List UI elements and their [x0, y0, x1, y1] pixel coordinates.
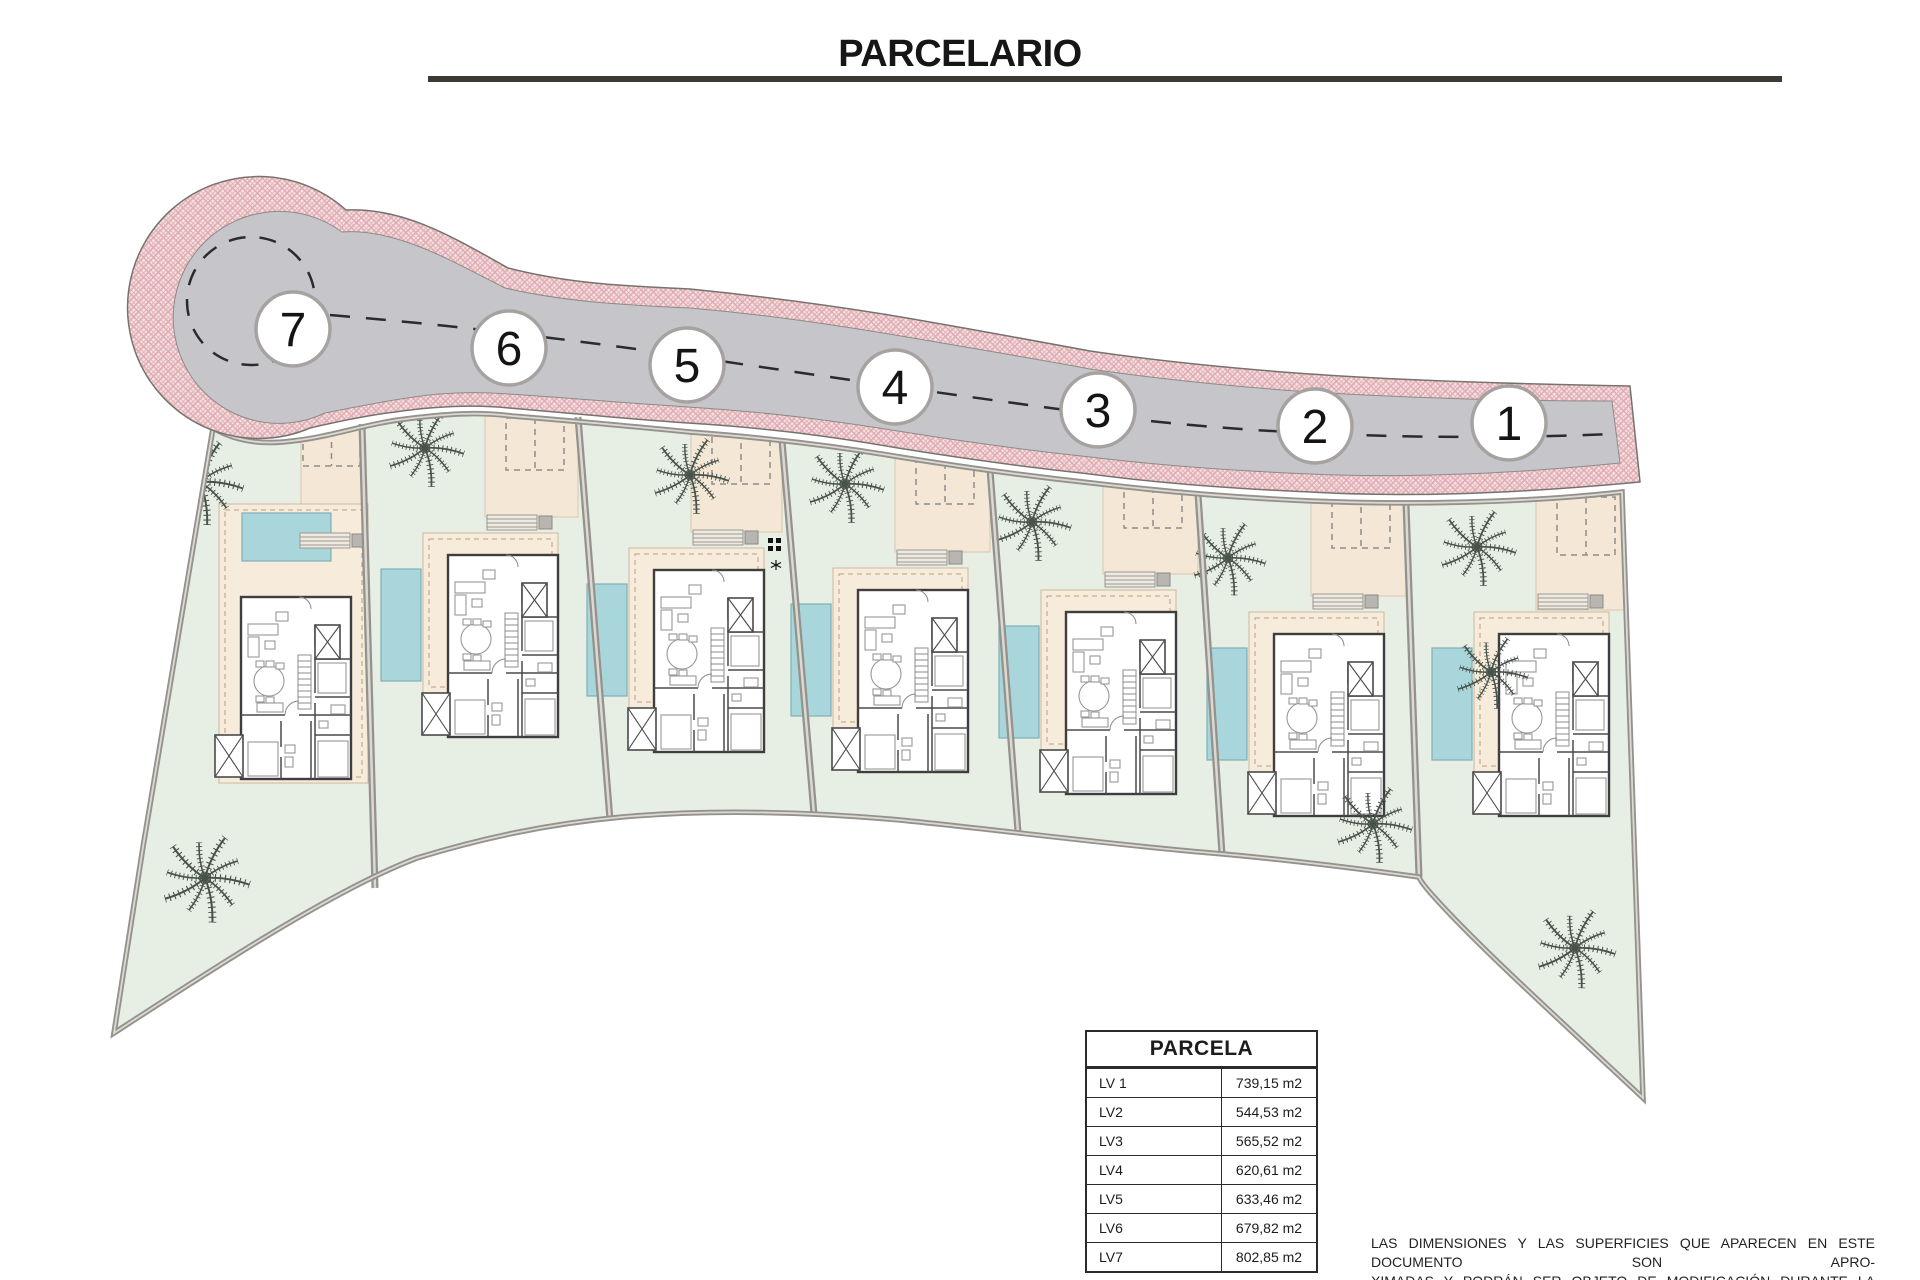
lot-marker-label: 3 — [1085, 385, 1112, 438]
table-row: LV4 620,61 m2 — [1087, 1155, 1316, 1184]
parcel-area: 544,53 m2 — [1221, 1098, 1316, 1126]
lot-marker-3: 3 — [1061, 373, 1135, 447]
parcel-area: 633,46 m2 — [1221, 1185, 1316, 1213]
lot-marker-label: 6 — [496, 323, 523, 376]
lot-marker-label: 5 — [674, 340, 701, 393]
parcel-id: LV6 — [1087, 1214, 1221, 1242]
parcel-area: 802,85 m2 — [1221, 1243, 1316, 1271]
table-row: LV 1 739,15 m2 — [1087, 1068, 1316, 1097]
disclaimer-note: LAS DIMENSIONES Y LAS SUPERFICIES QUE AP… — [1371, 1234, 1875, 1280]
disclaimer-line: XIMADAS Y PODRÁN SER OBJETO DE MODIFICAC… — [1371, 1272, 1875, 1280]
parcel-id: LV3 — [1087, 1127, 1221, 1155]
parcel-id: LV5 — [1087, 1185, 1221, 1213]
page: PARCELARIO — [0, 0, 1920, 1280]
lot-marker-6: 6 — [472, 311, 546, 385]
table-row: LV5 633,46 m2 — [1087, 1184, 1316, 1213]
lot-marker-label: 1 — [1496, 398, 1523, 451]
lot-marker-4: 4 — [858, 350, 932, 424]
parcel-id: LV4 — [1087, 1156, 1221, 1184]
lot-marker-label: 7 — [280, 304, 307, 357]
parcel-area: 679,82 m2 — [1221, 1214, 1316, 1242]
parcel-table-header: PARCELA — [1087, 1032, 1316, 1068]
lot-marker-1: 1 — [1472, 386, 1546, 460]
lot-marker-7: 7 — [256, 292, 330, 366]
disclaimer-line: LAS DIMENSIONES Y LAS SUPERFICIES QUE AP… — [1371, 1234, 1875, 1272]
parcel-area: 620,61 m2 — [1221, 1156, 1316, 1184]
lot-marker-label: 4 — [882, 362, 909, 415]
parcel-table: PARCELA LV 1 739,15 m2 LV2 544,53 m2 LV3… — [1085, 1030, 1318, 1273]
table-row: LV7 802,85 m2 — [1087, 1242, 1316, 1271]
lot-marker-label: 2 — [1302, 401, 1329, 454]
parcel-area: 739,15 m2 — [1221, 1069, 1316, 1097]
table-row: LV3 565,52 m2 — [1087, 1126, 1316, 1155]
site-plan: 7 6 5 4 3 2 1 — [0, 0, 1920, 1280]
table-row: LV6 679,82 m2 — [1087, 1213, 1316, 1242]
lot-marker-5: 5 — [650, 328, 724, 402]
parcel-id: LV2 — [1087, 1098, 1221, 1126]
plot-villa-7 — [215, 504, 368, 783]
lot-marker-2: 2 — [1278, 389, 1352, 463]
table-row: LV2 544,53 m2 — [1087, 1097, 1316, 1126]
parcel-area: 565,52 m2 — [1221, 1127, 1316, 1155]
parcel-id: LV7 — [1087, 1243, 1221, 1271]
parcel-id: LV 1 — [1087, 1069, 1221, 1097]
